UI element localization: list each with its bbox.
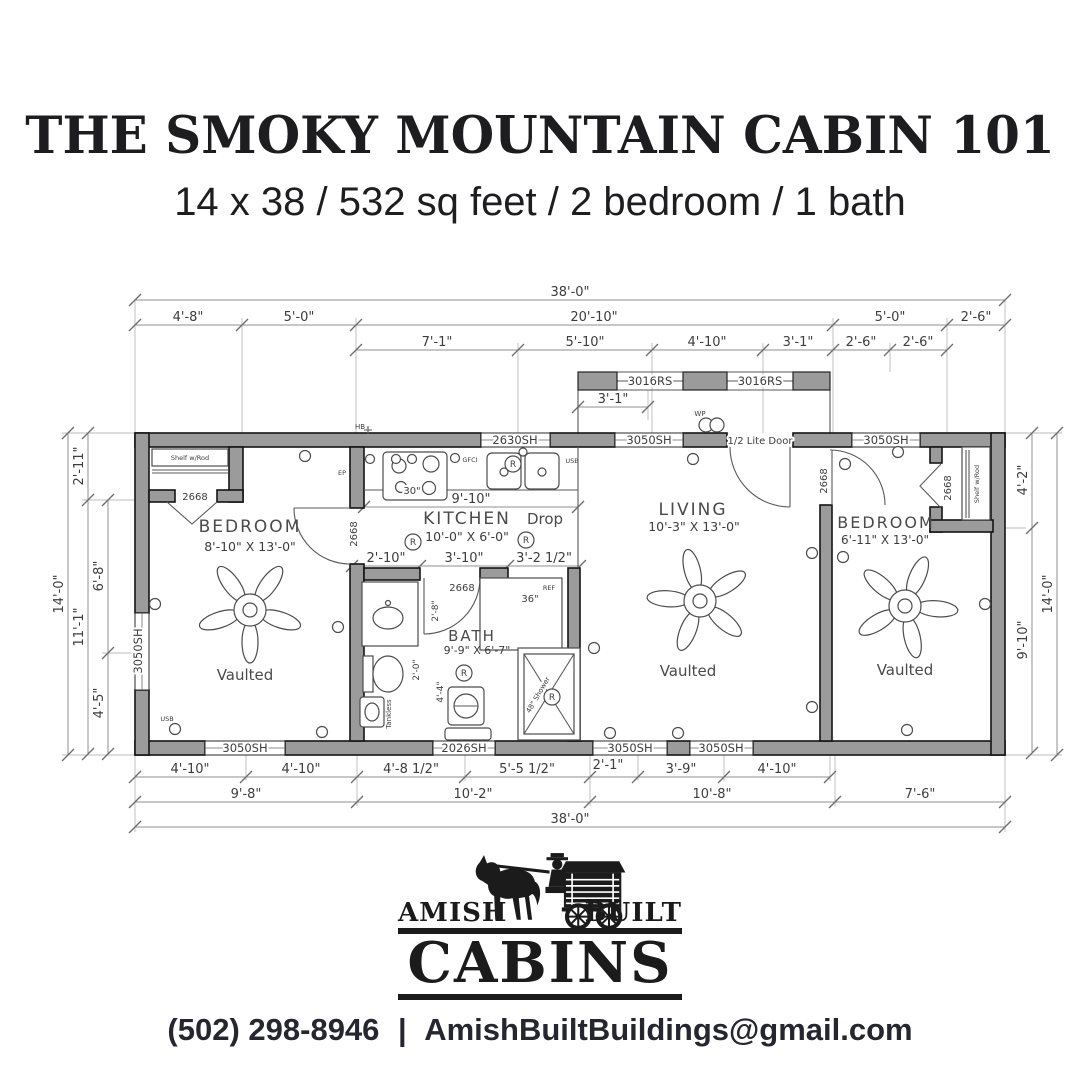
door-label: 2668 [349, 521, 360, 546]
logo-word-amish: AMISH [398, 898, 507, 928]
window-label: 3050SH [626, 433, 671, 447]
window-label: 2026SH [441, 741, 486, 755]
room-bath: BATH [448, 627, 496, 645]
svg-text:20'-10": 20'-10" [570, 310, 617, 325]
ceiling-fan [197, 562, 303, 663]
drop-label: Drop [527, 510, 563, 528]
svg-text:4'-10": 4'-10" [687, 335, 726, 350]
email-address: AmishBuiltBuildings@gmail.com [424, 1012, 912, 1047]
svg-text:2'-6": 2'-6" [961, 310, 992, 325]
window-label: 2630SH [492, 433, 537, 447]
toilet [373, 656, 403, 692]
window-label: 3050SH [131, 628, 145, 673]
usb-label: USB [160, 715, 173, 723]
svg-text:8'-10" X 13'-0": 8'-10" X 13'-0" [204, 539, 296, 554]
door-label: 2668 [943, 475, 954, 500]
svg-text:R: R [461, 669, 467, 679]
svg-text:4'-8": 4'-8" [173, 310, 204, 325]
porch-window [793, 372, 830, 390]
window-label: 3050SH [863, 433, 908, 447]
ep-label: EP [338, 469, 346, 477]
svg-text:4'-8 1/2": 4'-8 1/2" [383, 762, 439, 777]
svg-text:2'-11": 2'-11" [72, 446, 87, 485]
svg-text:5'-5 1/2": 5'-5 1/2" [499, 762, 555, 777]
svg-text:R: R [410, 538, 416, 548]
toilet-tank [363, 656, 373, 692]
svg-text:2'-6": 2'-6" [903, 335, 934, 350]
porch-window [683, 372, 727, 390]
shelf-label: Shelf w/Rod [973, 465, 981, 503]
porch-window [578, 372, 617, 390]
svg-text:5'-0": 5'-0" [284, 310, 315, 325]
contact-line: (502) 298-8946 | AmishBuiltBuildings@gma… [0, 1012, 1080, 1048]
ceiling-fan [647, 548, 750, 653]
stove-size-label: 30" [403, 486, 420, 497]
svg-text:4'-10": 4'-10" [757, 762, 796, 777]
svg-text:14'-0": 14'-0" [1041, 574, 1056, 613]
wp-label: WP [694, 410, 705, 418]
svg-text:10'-3" X 13'-0": 10'-3" X 13'-0" [648, 519, 740, 534]
svg-text:7'-6": 7'-6" [905, 787, 936, 802]
window-label: 3016RS [738, 374, 783, 388]
tankless-label: Tankless [385, 699, 393, 730]
hb-label: HB [355, 423, 365, 431]
svg-text:4'-2": 4'-2" [1016, 465, 1031, 496]
door-label: 2668 [819, 468, 830, 493]
svg-text:14'-0": 14'-0" [52, 574, 67, 613]
svg-text:9'-10": 9'-10" [451, 492, 490, 507]
svg-text:5'-0": 5'-0" [875, 310, 906, 325]
poster: THE SMOKY MOUNTAIN CABIN 101 14 x 38 / 5… [0, 0, 1080, 1080]
shelf-label: Shelf w/Rod [171, 454, 209, 462]
svg-text:4'-10": 4'-10" [281, 762, 320, 777]
svg-text:2'-1": 2'-1" [593, 758, 624, 773]
svg-text:10'-8": 10'-8" [692, 787, 731, 802]
svg-text:9'-9" X 6'-7": 9'-9" X 6'-7" [444, 644, 511, 657]
svg-text:10'-0" X 6'-0": 10'-0" X 6'-0" [425, 529, 509, 544]
svg-text:6'-11" X 13'-0": 6'-11" X 13'-0" [841, 533, 929, 547]
usb-label: USB [565, 457, 578, 465]
window-label: 3016RS [628, 374, 673, 388]
svg-text:Vaulted: Vaulted [877, 661, 934, 679]
svg-text:R: R [510, 460, 516, 470]
door-label: 2668 [182, 492, 207, 503]
svg-text:3'-2 1/2": 3'-2 1/2" [516, 551, 572, 566]
svg-text:38'-0": 38'-0" [550, 285, 589, 300]
svg-text:3'-1": 3'-1" [598, 392, 629, 407]
room-bed1: BEDROOM [199, 517, 302, 537]
svg-text:Vaulted: Vaulted [660, 662, 717, 680]
svg-text:38'-0": 38'-0" [550, 812, 589, 827]
logo-word-cabins: CABINS [398, 930, 682, 996]
svg-text:6'-8": 6'-8" [92, 561, 107, 592]
gfci-label: GFCI [462, 456, 477, 464]
svg-text:11'-1": 11'-1" [72, 607, 87, 646]
svg-text:3'-9": 3'-9" [666, 762, 697, 777]
svg-text:7'-1": 7'-1" [422, 335, 453, 350]
svg-text:R: R [523, 536, 529, 546]
svg-text:4'-10": 4'-10" [170, 762, 209, 777]
svg-text:3'-1": 3'-1" [783, 335, 814, 350]
svg-text:5'-10": 5'-10" [565, 335, 604, 350]
logo-divider [398, 994, 682, 1000]
bath-dim-b: 4'-4" [436, 681, 446, 702]
svg-text:4'-5": 4'-5" [92, 688, 107, 719]
svg-text:9'-8": 9'-8" [231, 787, 262, 802]
door-label: 2668 [449, 583, 474, 594]
window-label: 3050SH [607, 741, 652, 755]
ref-size-label: 36" [521, 594, 538, 605]
room-bed2: BEDROOM [837, 513, 935, 532]
room-kitchen: KITCHEN [423, 509, 511, 529]
company-logo: AMISH BUILT CABINS [398, 856, 682, 1006]
separator: | [388, 1012, 417, 1047]
door-width-label: 2'-8" [431, 600, 441, 621]
svg-text:2'-6": 2'-6" [846, 335, 877, 350]
entry-door-label: 1/2 Lite Door [728, 436, 794, 447]
ceiling-fan [855, 554, 958, 659]
window-label: 3050SH [222, 741, 267, 755]
room-living: LIVING [658, 500, 727, 520]
svg-text:R: R [549, 693, 555, 703]
ref-label: REF [543, 584, 556, 592]
logo-word-built: BUILT [585, 898, 682, 928]
svg-text:9'-10": 9'-10" [1016, 620, 1031, 659]
svg-text:3'-10": 3'-10" [444, 551, 483, 566]
phone-number: (502) 298-8946 [167, 1012, 379, 1047]
bath-dim-a: 2'-0" [412, 659, 422, 680]
svg-text:10'-2": 10'-2" [453, 787, 492, 802]
svg-text:2'-10": 2'-10" [366, 551, 405, 566]
svg-text:Vaulted: Vaulted [217, 666, 274, 684]
window-label: 3050SH [698, 741, 743, 755]
